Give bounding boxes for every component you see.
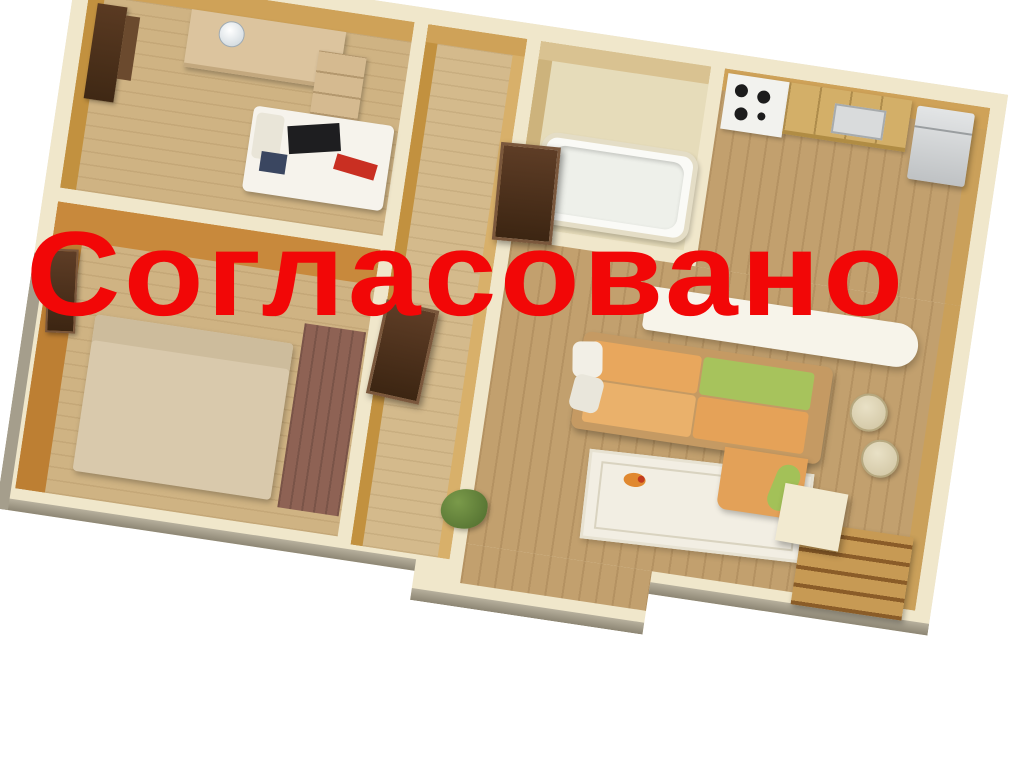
floor-plan-render: Согласовано xyxy=(0,0,1024,768)
desk-drawer-unit xyxy=(310,50,367,120)
stair-column xyxy=(775,483,848,552)
clothes-item xyxy=(259,151,288,175)
stove-burner xyxy=(734,107,749,122)
stove xyxy=(720,73,790,138)
cat-head xyxy=(637,475,645,483)
stove-burner xyxy=(757,112,766,121)
double-bed xyxy=(72,314,293,500)
clothes-item xyxy=(333,153,378,180)
approval-stamp-text: Согласовано xyxy=(26,208,906,340)
stove-burner xyxy=(756,90,771,105)
stove-burner xyxy=(734,83,749,98)
refrigerator-door-seam xyxy=(914,125,972,136)
sofa-pillow xyxy=(572,341,602,377)
clothes-item xyxy=(287,123,341,154)
refrigerator xyxy=(907,105,975,187)
